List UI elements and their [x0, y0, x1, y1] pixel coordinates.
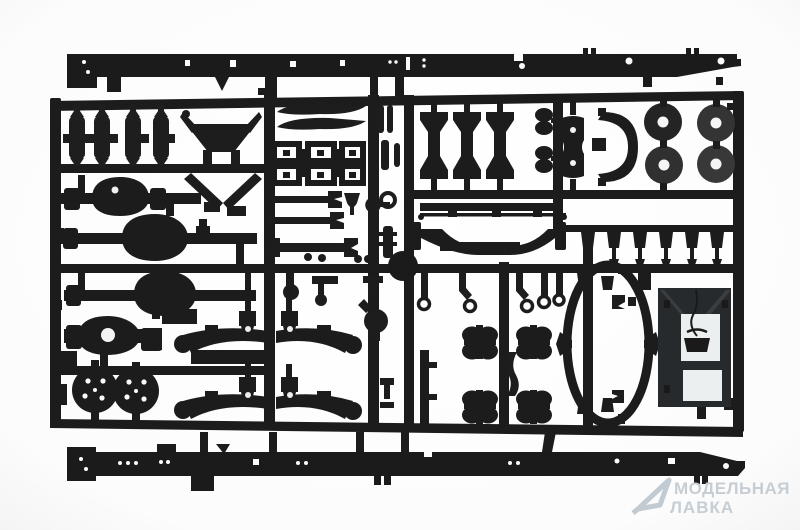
svg-text:МОДЕЛЬНАЯ: МОДЕЛЬНАЯ: [674, 479, 790, 498]
svg-text:ЛАВКА: ЛАВКА: [670, 498, 734, 517]
